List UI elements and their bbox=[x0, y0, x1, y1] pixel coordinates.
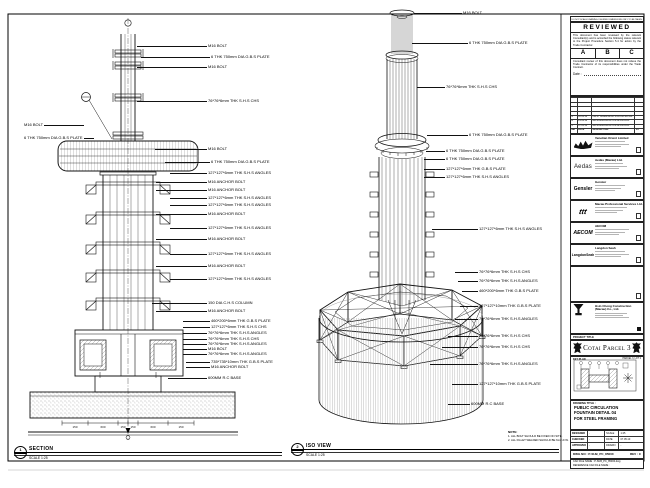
callout-text: 76*76*6mm THK S.H.S CHS bbox=[479, 270, 530, 274]
leader-line bbox=[170, 279, 207, 280]
callout: 460*200*6mm THK G.B.S PLATE bbox=[462, 289, 539, 293]
leader-line bbox=[432, 229, 478, 230]
leader-line bbox=[141, 57, 210, 58]
consultant-name: Aedas (Macau) Ltd. bbox=[595, 159, 643, 162]
consultant-row-macau-professional: ttt Macau Professional Services Ltd. bbox=[570, 200, 644, 222]
callout-text: 76*76*6mm THK S.H.S ANGLES bbox=[479, 279, 538, 283]
signoff-row: APPROVED-DRAWN- bbox=[571, 442, 643, 448]
mps-logo-icon: ttt bbox=[569, 201, 597, 221]
callout: 127*127*6mm THK S.H.S ANGLES bbox=[170, 277, 271, 281]
callout-text: 127*127*6mm THK S.H.S ANGLES bbox=[208, 277, 271, 281]
callout: 76*76*6mm THK S.H.S CHS bbox=[417, 85, 497, 89]
callout: 6 THK 750mm DIA G.B.S PLATE bbox=[412, 41, 528, 45]
consultant-name: Langdon Seah bbox=[595, 247, 643, 250]
leader-line bbox=[417, 87, 445, 88]
stamp-date-row: Date : bbox=[571, 71, 643, 78]
leader-line bbox=[186, 362, 210, 363]
callout: 76*76*6mm THK S.H.S ANGLES bbox=[455, 317, 538, 321]
leader-line bbox=[156, 190, 207, 191]
callout-text: M16 ANCHOR BOLT bbox=[208, 309, 245, 313]
project-title-text: Cotai Parcel 3 bbox=[583, 344, 631, 352]
stamp-checkbox bbox=[636, 293, 642, 299]
revision-row: A12.03.10FIRST SUBMISSION FOR APPROVAL bbox=[571, 115, 643, 119]
callout-text: 76*76*6mm THK S.H.S CHS bbox=[446, 85, 497, 89]
callout: 6 THK 750mm DIA G.B.S PLATE bbox=[165, 160, 270, 164]
callout-text: M16 BOLT bbox=[208, 65, 227, 69]
dimension-text: 150 bbox=[130, 425, 135, 429]
date-label: Date : bbox=[573, 72, 582, 76]
leader-line bbox=[170, 198, 207, 199]
callout: 127*127*6mm THK S.H.S ANGLES bbox=[170, 252, 271, 256]
leader-line bbox=[156, 266, 207, 267]
stamp-checkbox bbox=[636, 169, 642, 175]
callout: 76*76*6mm THK S.H.S ANGLES bbox=[183, 352, 267, 356]
callout-text: 127*127*6mm THK S.H.S ANGLES bbox=[479, 227, 542, 231]
dimension-text: 150 bbox=[178, 425, 183, 429]
callout: 76*76*6mm THK S.H.S CHS bbox=[455, 270, 530, 274]
callout-text: 127*127*6mm THK S.H.S ANGLES bbox=[208, 196, 271, 200]
revision-row-empty bbox=[571, 106, 643, 111]
callout: 6 THK 750mm DIA G.B.S PLATE bbox=[141, 55, 270, 59]
address-text bbox=[595, 251, 643, 256]
leader-line bbox=[412, 43, 468, 44]
leader-line bbox=[168, 378, 207, 379]
aedas-logo-icon: Aedas bbox=[571, 157, 595, 177]
reviewed-paragraph: This document has been reviewed by the r… bbox=[571, 33, 643, 48]
consultant-name: Macau Professional Services Ltd. bbox=[595, 203, 643, 206]
leader-line bbox=[424, 169, 445, 170]
callout: 150 DIA C.H.S COLUMN bbox=[152, 301, 252, 305]
consultant-row-aecom: AECOM AECOM bbox=[570, 222, 644, 244]
reviewed-stamp: REVIEWED This document has been reviewed… bbox=[570, 22, 644, 96]
drawing-title-line: FOR STEEL FRAMING bbox=[571, 416, 643, 422]
key-plan: KEY PLAN PARCEL 3, LOT 2 bbox=[570, 356, 644, 400]
leader-line bbox=[462, 291, 478, 292]
leader-line bbox=[156, 311, 207, 312]
callout: M16 BOLT bbox=[137, 44, 227, 48]
callout: 76*76*6mm THK S.H.S CHS bbox=[442, 345, 530, 349]
callout: 127*127*6mm THK S.H.S ANGLES bbox=[170, 203, 271, 207]
callout: 76*76*6mm THK S.H.S ANGLES bbox=[430, 362, 538, 366]
leader-line bbox=[137, 101, 207, 102]
callout: 600MM R.C BASE bbox=[448, 402, 504, 406]
callout-text: 76*76*6mm THK S.H.S CHS bbox=[479, 345, 530, 349]
leader-line bbox=[448, 404, 470, 405]
stamp-checkbox bbox=[636, 235, 642, 241]
callout: 127*127*6mm THK G.B.S PLATE bbox=[424, 167, 506, 171]
callout-text: 127*127*6mm THK S.H.S ANGLES bbox=[208, 171, 271, 175]
revision-row: C07.05.10RE-SUBMISSION FOR APPROVAL bbox=[571, 124, 643, 128]
callout: M16 BOLT bbox=[137, 65, 227, 69]
consultant-name: AECOM bbox=[595, 225, 643, 228]
callout-text: 6 THK 750mm DIA G.B.S PLATE bbox=[469, 133, 528, 137]
dimension-text: 600 bbox=[100, 425, 105, 429]
langdon-seah-logo-icon: LangdonSeah bbox=[571, 245, 595, 265]
leader-line bbox=[448, 336, 478, 337]
revision-row: B21.04.10RE-SUBMISSION FOR APPROVAL bbox=[571, 119, 643, 123]
revision-value: REV : C bbox=[630, 451, 641, 458]
dwg-no-label: DWG NO : bbox=[573, 452, 588, 456]
callout-text: 6 THK 750mm DIA G.B.S PLATE bbox=[211, 55, 270, 59]
leader-line bbox=[183, 354, 207, 355]
view-title-text: SECTION bbox=[29, 446, 53, 452]
callout-text: M16 ANCHOR BOLT bbox=[208, 212, 245, 216]
callout-text: 76*76*6mm THK S.H.S ANGLES bbox=[479, 317, 538, 321]
address-text bbox=[595, 141, 643, 146]
signoff-row: DESIGNED-SCALE1:25 bbox=[571, 431, 643, 436]
callout-text: M16 ANCHOR BOLT bbox=[208, 237, 245, 241]
callout: M16 ANCHOR BOLT bbox=[156, 264, 245, 268]
reviewed-paragraph: Consultant review of this document does … bbox=[571, 59, 643, 71]
view-title-text: ISO VIEW bbox=[306, 443, 331, 449]
status-option-b: B bbox=[595, 49, 619, 58]
consultant-name: Venetian Orient Limited bbox=[595, 137, 643, 140]
callout: M16 ANCHOR BOLT bbox=[156, 212, 245, 216]
leader-line bbox=[414, 13, 462, 14]
detail-sheet: - bbox=[20, 452, 21, 457]
callout: 127*127*6mm THK S.H.S ANGLES bbox=[170, 196, 271, 200]
dimension-text: 150 bbox=[120, 425, 125, 429]
callout: M16 BOLT bbox=[414, 11, 482, 15]
spare-stamp-box bbox=[570, 266, 644, 302]
callout-text: 6 THK 750mm DIA G.B.S PLATE bbox=[24, 136, 83, 140]
stamp-mark bbox=[637, 327, 641, 331]
leader-line bbox=[427, 135, 468, 136]
callout-text: 127*127*6mm THK S.H.S CHS bbox=[211, 325, 267, 329]
leader-line bbox=[183, 349, 207, 350]
callout-text: M16 ANCHOR BOLT bbox=[211, 365, 248, 369]
revision-row-empty bbox=[571, 111, 643, 116]
callout-text: M16 ANCHOR BOLT bbox=[208, 264, 245, 268]
callout-text: M16 ANCHOR BOLT bbox=[208, 188, 245, 192]
callout: 127*127*6mm THK S.H.S ANGLES bbox=[424, 175, 509, 179]
leader-line bbox=[424, 159, 445, 160]
callout-text: 127*127*6mm THK S.H.S ANGLES bbox=[208, 252, 271, 256]
leader-line bbox=[170, 173, 207, 174]
dwg-no-value: P-SUB_PC_85000 bbox=[588, 452, 613, 456]
callout: 76*76*6mm THK S.H.S CHS bbox=[448, 334, 530, 338]
leader-line bbox=[186, 367, 210, 368]
leader-line bbox=[156, 214, 207, 215]
leader-line bbox=[156, 182, 207, 183]
callout-text: 6 THK 750mm DIA G.B.S PLATE bbox=[469, 41, 528, 45]
callout-text: 76*76*6mm THK S.H.S ANGLES bbox=[208, 352, 267, 356]
callout: 460*200*6mm THK G.B.S PLATE bbox=[183, 319, 271, 323]
callout-text: 127*127*6mm THK G.B.S PLATE bbox=[446, 167, 506, 171]
leader-line bbox=[183, 344, 207, 345]
callout: 6 THK 750mm DIA G.B.S PLATE bbox=[24, 136, 94, 140]
leader-line bbox=[455, 319, 478, 320]
iso-view-title: 2- ISO VIEW SCALE 1:25 bbox=[291, 443, 331, 457]
notes-block: NOTE: 1. ALL BOLT SHOULD BE FIXED ON SIT… bbox=[508, 430, 569, 442]
view-title-rule bbox=[14, 452, 282, 453]
leader-line bbox=[430, 364, 478, 365]
stamp-checkbox bbox=[636, 147, 642, 153]
leader-line bbox=[84, 138, 94, 139]
callout: M16 ANCHOR BOLT bbox=[156, 180, 245, 184]
callout: M16 BOLT bbox=[24, 123, 84, 127]
leader-line bbox=[426, 151, 445, 152]
leader-line bbox=[183, 327, 210, 328]
aecom-logo-icon: AECOM bbox=[571, 223, 595, 243]
callout-text: 150 DIA C.H.S COLUMN bbox=[208, 301, 252, 305]
leader-line bbox=[156, 239, 207, 240]
drawing-sheet: M16 BOLT 6 THK 750mm DIA G.B.S PLATE M16… bbox=[0, 0, 650, 488]
view-title-rule bbox=[291, 452, 559, 453]
key-plan-drawing bbox=[571, 357, 641, 393]
callout-text: 127*127*10mm THK G.B.S PLATE bbox=[479, 304, 541, 308]
leader-line bbox=[152, 303, 207, 304]
callout: 6 THK 750mm DIA G.B.S PLATE bbox=[424, 157, 505, 161]
callout-text: 6 THK 750mm DIA G.B.S PLATE bbox=[211, 160, 270, 164]
reviewed-title: REVIEWED bbox=[571, 23, 643, 33]
drawing-linework bbox=[0, 0, 650, 488]
contractor-name: Hsin Chong Construction (Macau) Co., Ltd… bbox=[595, 305, 643, 312]
callout-text: 6 THK 750mm DIA G.B.S PLATE bbox=[446, 157, 505, 161]
note-line: 2. ALL FILLET WELDED SHOULD BE 6mm F.W. bbox=[508, 438, 569, 442]
stamp-checkbox bbox=[636, 257, 642, 263]
consultant-row-aedas: Aedas Aedas (Macau) Ltd. bbox=[570, 156, 644, 178]
leader-line bbox=[442, 347, 478, 348]
callout-text: 76*76*6mm THK S.H.S ANGLES bbox=[208, 331, 267, 335]
consultant-row-gensler: Gensler Gensler bbox=[570, 178, 644, 200]
leader-line bbox=[44, 125, 84, 126]
leader-line bbox=[455, 272, 478, 273]
dimension-text: 150 bbox=[72, 425, 77, 429]
consultant-row-venetian: Venetian Orient Limited bbox=[570, 134, 644, 156]
status-option-c: C bbox=[619, 49, 643, 58]
date-line bbox=[584, 72, 641, 76]
leader-line bbox=[137, 46, 207, 47]
stamp-checkbox bbox=[636, 213, 642, 219]
callout: 6 THK 750mm DIA G.B.S PLATE bbox=[426, 149, 505, 153]
leader-line bbox=[165, 162, 210, 163]
callout: 76*76*6mm THK S.H.S CHS bbox=[137, 99, 259, 103]
callout-text: M16 BOLT bbox=[463, 11, 482, 15]
emblem-icon bbox=[573, 342, 582, 353]
callout: 127*127*6mm THK S.H.S CHS bbox=[183, 325, 267, 329]
callout-text: 127*127*6mm THK S.H.S ANGLES bbox=[446, 175, 509, 179]
leader-line bbox=[137, 67, 207, 68]
callout-text: 600MM R.C BASE bbox=[208, 376, 241, 380]
leader-line bbox=[460, 306, 478, 307]
callout: 76*76*6mm THK S.H.S ANGLES bbox=[183, 331, 267, 335]
section-view-title: 1- SECTION SCALE 1:25 bbox=[14, 446, 53, 460]
signoff-row: CHECKED-DATE07.05.10 bbox=[571, 436, 643, 442]
revision-header-row: MKDATEDESCRIPTIONBY bbox=[571, 128, 643, 132]
gensler-logo-icon: Gensler bbox=[571, 179, 595, 199]
callout-text: M16 BOLT bbox=[208, 147, 227, 151]
address-text bbox=[595, 185, 643, 190]
detail-bubble: 2- bbox=[291, 443, 304, 456]
view-title-rule bbox=[291, 449, 559, 450]
callout-text: 76*76*6mm THK S.H.S ANGLES bbox=[479, 362, 538, 366]
venetian-orient-logo-icon bbox=[571, 135, 595, 155]
address-text bbox=[595, 313, 643, 318]
detail-sheet: - bbox=[297, 449, 298, 454]
stamp-checkbox bbox=[636, 191, 642, 197]
dimension-text: 600 bbox=[150, 425, 155, 429]
detail-bubble: 1- bbox=[14, 446, 27, 459]
review-status-options: A B C bbox=[571, 48, 643, 59]
drawing-number-row: DWG NO : P-SUB_PC_85000 REV : C bbox=[570, 450, 644, 459]
callout: 127*127*6mm THK S.H.S ANGLES bbox=[170, 226, 271, 230]
callout-text: 76*76*6mm THK S.H.S CHS bbox=[208, 99, 259, 103]
callout-text: 127*127*6mm THK S.H.S ANGLES bbox=[208, 203, 271, 207]
revision-row-empty bbox=[571, 97, 643, 102]
leader-line bbox=[155, 149, 207, 150]
view-scale-text: SCALE 1:25 bbox=[29, 456, 53, 460]
callout-text: 600MM R.C BASE bbox=[471, 402, 504, 406]
callout-text: 460*200*6mm THK G.B.S PLATE bbox=[479, 289, 539, 293]
callout: 127*127*6mm THK S.H.S ANGLES bbox=[170, 171, 271, 175]
leader-line bbox=[424, 177, 445, 178]
callout-text: M16 BOLT bbox=[24, 123, 43, 127]
callout: M16 BOLT bbox=[155, 147, 227, 151]
callout: 127*127*10mm THK G.B.S PLATE bbox=[452, 382, 541, 386]
callout: M16 ANCHOR BOLT bbox=[186, 365, 248, 369]
contractor-logo-icon bbox=[571, 303, 595, 333]
drawing-title-block: DRAWING TITLE : PUBLIC CIRCULATION FOUNT… bbox=[570, 400, 644, 430]
consultant-name: Gensler bbox=[595, 181, 643, 184]
leader-line bbox=[170, 254, 207, 255]
leader-line bbox=[452, 384, 478, 385]
emblem-icon bbox=[632, 342, 641, 353]
callout: 76*76*6mm THK S.H.S ANGLES bbox=[458, 279, 538, 283]
callout: 127*127*10mm THK G.B.S PLATE bbox=[460, 304, 541, 308]
callout-text: 76*76*6mm THK S.H.S CHS bbox=[479, 334, 530, 338]
callout: 600MM R.C BASE bbox=[168, 376, 241, 380]
leader-line bbox=[183, 339, 207, 340]
address-text bbox=[595, 229, 643, 234]
address-text bbox=[595, 163, 643, 168]
callout: 127*127*6mm THK S.H.S ANGLES bbox=[432, 227, 542, 231]
cad-ref-label: REFERENCE CAD FILE NAME : bbox=[573, 464, 641, 468]
status-option-a: A bbox=[571, 49, 595, 58]
contractor-block: Hsin Chong Construction (Macau) Co., Ltd… bbox=[570, 302, 644, 334]
address-text bbox=[595, 207, 643, 212]
revision-row-empty bbox=[571, 102, 643, 107]
leader-line bbox=[183, 333, 207, 334]
callout-text: 6 THK 750mm DIA G.B.S PLATE bbox=[446, 149, 505, 153]
callout: M16 ANCHOR BOLT bbox=[156, 188, 245, 192]
leader-line bbox=[183, 321, 210, 322]
leader-line bbox=[458, 281, 478, 282]
callout-text: M16 BOLT bbox=[208, 44, 227, 48]
signoff-table: DESIGNED-SCALE1:25 CHECKED-DATE07.05.10 … bbox=[570, 430, 644, 450]
title-block: DO NOT SCALE DRAWING. FIGURED DIMENSIONS… bbox=[570, 16, 644, 469]
callout: M16 ANCHOR BOLT bbox=[156, 237, 245, 241]
callout-text: M16 ANCHOR BOLT bbox=[208, 180, 245, 184]
callout: M16 ANCHOR BOLT bbox=[156, 309, 245, 313]
callout-text: 460*200*6mm THK G.B.S PLATE bbox=[211, 319, 271, 323]
revision-table: A12.03.10FIRST SUBMISSION FOR APPROVAL B… bbox=[570, 96, 644, 134]
cad-file-block: CAD FILE NAME : P-SUB_PC_85000.dwg REFER… bbox=[570, 459, 644, 469]
callout-text: 127*127*10mm THK G.B.S PLATE bbox=[479, 382, 541, 386]
consultant-row-langdon-seah: LangdonSeah Langdon Seah bbox=[570, 244, 644, 266]
view-scale-text: SCALE 1:25 bbox=[306, 453, 331, 457]
leader-line bbox=[170, 205, 207, 206]
view-title-rule bbox=[14, 455, 282, 456]
callout: 6 THK 750mm DIA G.B.S PLATE bbox=[427, 133, 528, 137]
callout-text: 127*127*6mm THK S.H.S ANGLES bbox=[208, 226, 271, 230]
leader-line bbox=[170, 228, 207, 229]
project-title-banner: Cotai Parcel 3 bbox=[570, 340, 644, 356]
